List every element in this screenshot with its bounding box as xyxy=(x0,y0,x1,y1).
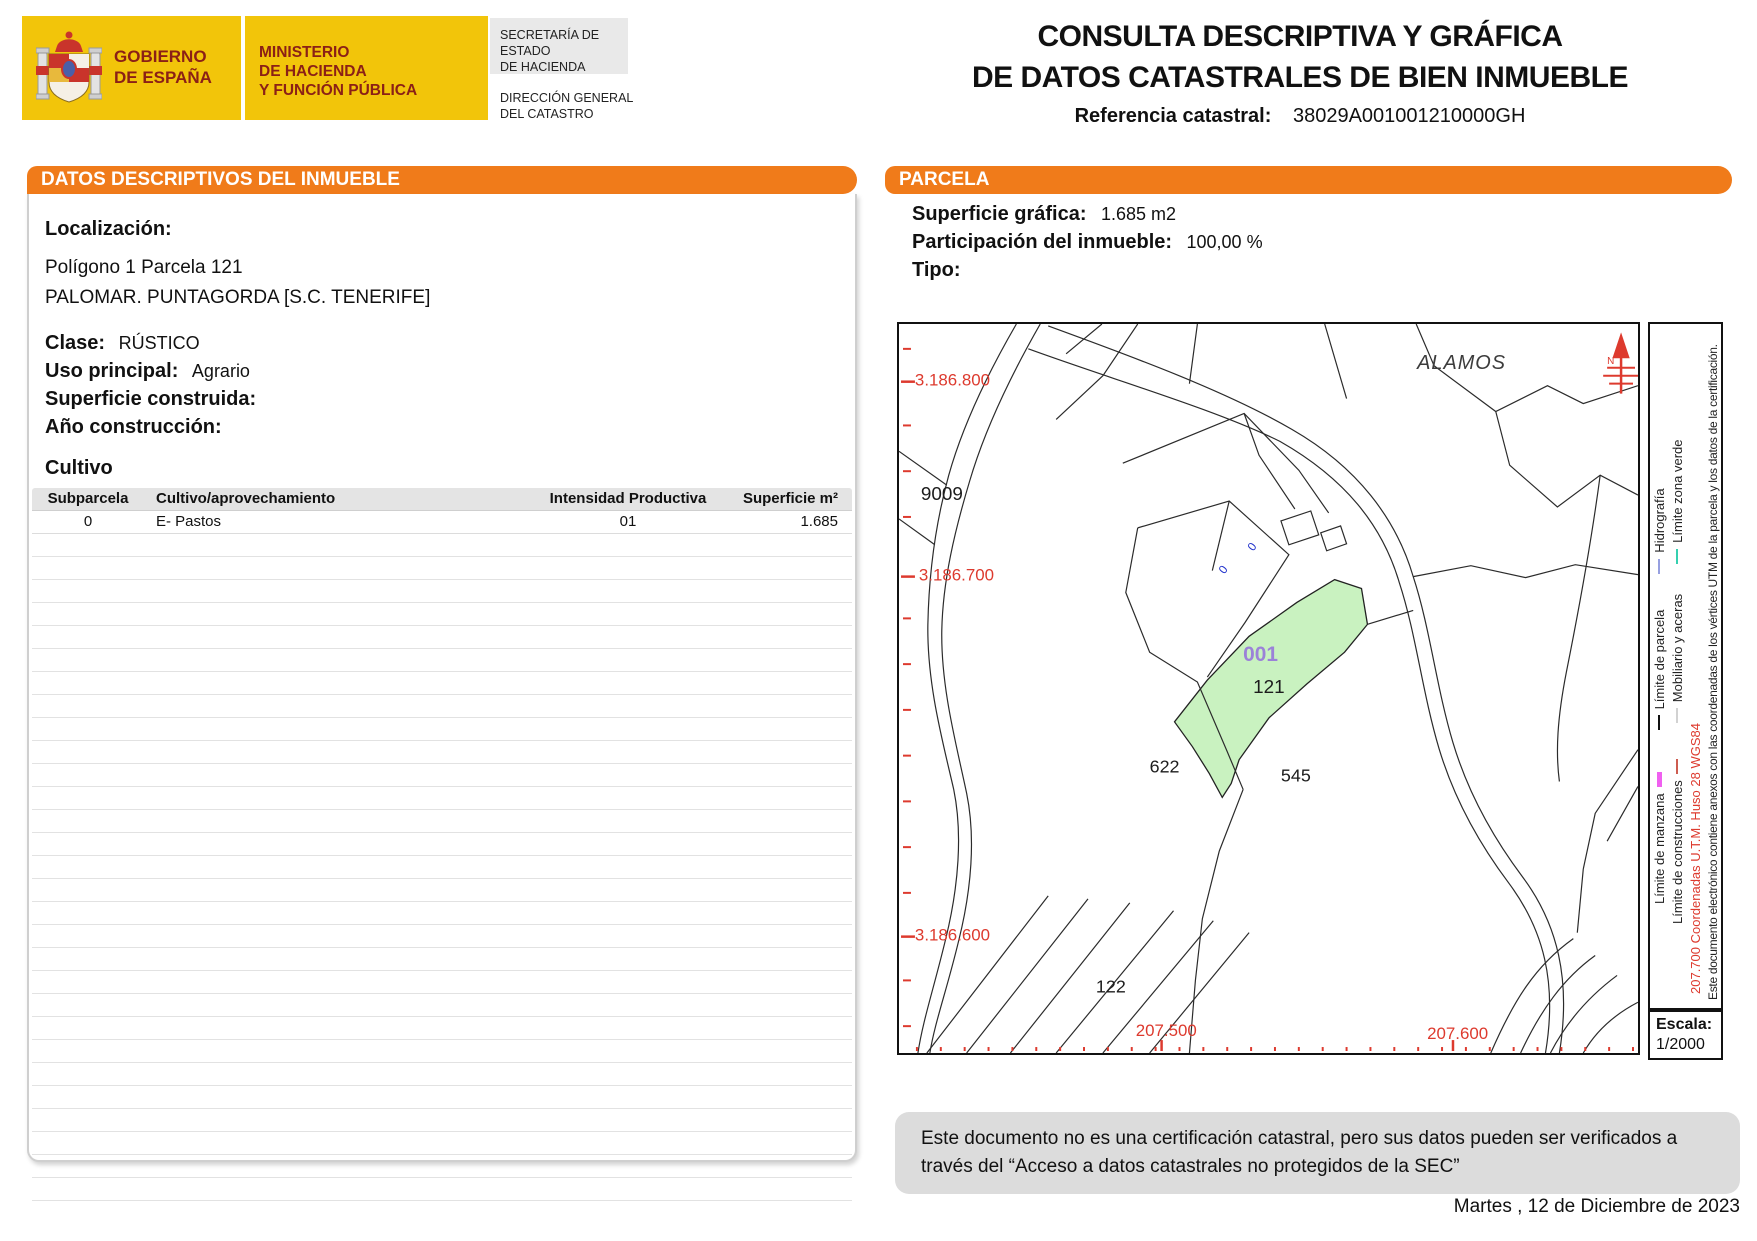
empty-table-row xyxy=(32,1063,852,1086)
gobierno-logo-text: GOBIERNO DE ESPAÑA xyxy=(114,46,212,88)
y-axis-label-3186800: 3.186.800 xyxy=(915,371,990,390)
map-label-9009: 9009 xyxy=(921,484,963,505)
ministerio-banner: MINISTERIO DE HACIENDA Y FUNCIÓN PÚBLICA xyxy=(245,16,488,120)
legend-row-2: Límite de construcciones Mobiliario y ac… xyxy=(1668,324,1686,1008)
superficie-construida-row: Superficie construida: xyxy=(45,385,855,413)
empty-table-row xyxy=(32,1132,852,1155)
tipo-label: Tipo: xyxy=(912,259,961,281)
map-legend-panel: Límite de manzana Límite de parcela Hidr… xyxy=(1648,322,1723,1010)
scale-box: Escala: 1/2000 xyxy=(1648,1010,1723,1060)
legend-limite-parcela-label: Límite de parcela xyxy=(1652,610,1667,710)
clase-value: RÚSTICO xyxy=(119,333,200,353)
map-canvas: N ALAMOS 9009 122 622 545 001 121 3.186.… xyxy=(899,324,1638,1053)
anio-construccion-row: Año construcción: xyxy=(45,413,855,441)
empty-table-row xyxy=(32,557,852,580)
tipo-row: Tipo: xyxy=(912,259,961,282)
north-letter: N xyxy=(1607,356,1614,367)
section-title-bold: INMUEBLE xyxy=(301,169,400,190)
empty-table-row xyxy=(32,718,852,741)
secretaria-estado-label: SECRETARÍA DE ESTADO DE HACIENDA xyxy=(490,18,628,74)
document-date: Martes , 12 de Diciembre de 2023 xyxy=(1454,1196,1740,1218)
localizacion-line-2: PALOMAR. PUNTAGORDA [S.C. TENERIFE] xyxy=(45,283,855,313)
clase-row: Clase: RÚSTICO xyxy=(45,329,855,357)
empty-table-row xyxy=(32,787,852,810)
empty-table-row xyxy=(32,741,852,764)
x-axis-label-207500: 207.500 xyxy=(1136,1021,1197,1040)
empty-table-row xyxy=(32,649,852,672)
empty-table-row xyxy=(32,925,852,948)
referencia-catastral-row: Referencia catastral: 38029A001001210000… xyxy=(920,105,1680,128)
col-header-superficie: Superficie m² xyxy=(734,488,852,510)
map-label-parcela-121: 121 xyxy=(1253,677,1285,698)
legend-zona-verde-label: Límite zona verde xyxy=(1670,439,1685,542)
legend-mobiliario-label: Mobiliario y aceras xyxy=(1670,594,1685,702)
empty-table-rows xyxy=(32,534,852,1201)
empty-table-row xyxy=(32,534,852,557)
empty-table-row xyxy=(32,856,852,879)
participacion-label: Participación del inmueble: xyxy=(912,231,1172,253)
document-title: CONSULTA DESCRIPTIVA Y GRÁFICA DE DATOS … xyxy=(920,16,1680,128)
cultivo-table: Subparcela Cultivo/aprovechamiento Inten… xyxy=(32,488,852,1201)
parcela-swatch-icon xyxy=(1658,715,1660,730)
cell-subparcela: 0 xyxy=(32,511,144,533)
legend-row-1: Límite de manzana Límite de parcela Hidr… xyxy=(1650,324,1668,1008)
referencia-catastral-value: 38029A001001210000GH xyxy=(1293,105,1525,127)
participacion-value: 100,00 % xyxy=(1187,232,1263,252)
localizacion-label: Localización: xyxy=(45,218,855,241)
empty-table-row xyxy=(32,1155,852,1178)
superficie-grafica-value: 1.685 m2 xyxy=(1101,204,1176,224)
cell-intensidad: 01 xyxy=(522,511,734,533)
empty-table-row xyxy=(32,810,852,833)
empty-table-row xyxy=(32,764,852,787)
title-line-1: CONSULTA DESCRIPTIVA Y GRÁFICA xyxy=(920,16,1680,57)
datos-descriptivos-panel: Localización: Polígono 1 Parcela 121 PAL… xyxy=(27,194,857,1162)
empty-table-row xyxy=(32,1086,852,1109)
cadastral-document-page: GOBIERNO DE ESPAÑA MINISTERIO DE HACIEND… xyxy=(0,0,1757,1241)
empty-table-row xyxy=(32,626,852,649)
legend-limite-manzana-label: Límite de manzana xyxy=(1652,793,1667,904)
building-label-0a: 0 xyxy=(1216,562,1231,576)
title-line-2: DE DATOS CATASTRALES DE BIEN INMUEBLE xyxy=(920,57,1680,98)
col-header-subparcela: Subparcela xyxy=(32,488,144,510)
construcciones-swatch-icon xyxy=(1676,759,1678,774)
empty-table-row xyxy=(32,672,852,695)
empty-table-row xyxy=(32,603,852,626)
empty-table-row xyxy=(32,1178,852,1201)
hidrografia-swatch-icon xyxy=(1658,559,1660,574)
empty-table-row xyxy=(32,948,852,971)
empty-table-row xyxy=(32,902,852,925)
map-label-subparcela-001: 001 xyxy=(1243,643,1278,666)
x-axis-label-207600: 207.600 xyxy=(1427,1024,1488,1043)
empty-table-row xyxy=(32,695,852,718)
map-label-alamos: ALAMOS xyxy=(1416,352,1506,374)
clase-label: Clase: xyxy=(45,332,105,354)
map-label-122: 122 xyxy=(1096,976,1126,996)
scale-value: 1/2000 xyxy=(1656,1035,1721,1055)
uso-principal-label: Uso principal: xyxy=(45,360,178,382)
cadastral-map: N ALAMOS 9009 122 622 545 001 121 3.186.… xyxy=(897,322,1640,1055)
empty-table-row xyxy=(32,833,852,856)
superficie-construida-label: Superficie construida: xyxy=(45,388,256,410)
legend-hidrografia-label: Hidrografía xyxy=(1652,488,1667,552)
localizacion-line-1: Polígono 1 Parcela 121 xyxy=(45,253,855,283)
col-header-intensidad: Intensidad Productiva xyxy=(522,488,734,510)
map-label-545: 545 xyxy=(1281,765,1311,785)
manzana-swatch-icon xyxy=(1657,772,1662,787)
map-label-622: 622 xyxy=(1150,757,1180,777)
disclaimer-box: Este documento no es una certificación c… xyxy=(895,1112,1740,1194)
scale-label: Escala: xyxy=(1656,1015,1721,1035)
empty-table-row xyxy=(32,1109,852,1132)
participacion-row: Participación del inmueble: 100,00 % xyxy=(912,231,1263,254)
north-arrow-icon: N xyxy=(1603,334,1638,394)
empty-table-row xyxy=(32,1017,852,1040)
ministerio-logo-text: MINISTERIO DE HACIENDA Y FUNCIÓN PÚBLICA xyxy=(259,43,417,100)
direccion-general-catastro-label: DIRECCIÓN GENERAL DEL CATASTRO xyxy=(500,90,633,122)
certification-note: Este documento electrónico contiene anex… xyxy=(1704,324,1722,1008)
gobierno-banner: GOBIERNO DE ESPAÑA xyxy=(22,16,241,120)
building-label-0b: 0 xyxy=(1244,539,1259,553)
section-header-datos-descriptivos: DATOS DESCRIPTIVOS DEL INMUEBLE xyxy=(27,166,857,194)
y-axis-label-3186600: 3.186.600 xyxy=(915,926,990,945)
empty-table-row xyxy=(32,580,852,603)
uso-principal-value: Agrario xyxy=(192,361,250,381)
empty-table-row xyxy=(32,879,852,902)
col-header-cultivo: Cultivo/aprovechamiento xyxy=(144,488,522,510)
referencia-catastral-label: Referencia catastral: xyxy=(1075,105,1272,127)
superficie-grafica-row: Superficie gráfica: 1.685 m2 xyxy=(912,203,1176,226)
anio-construccion-label: Año construcción: xyxy=(45,416,222,438)
uso-principal-row: Uso principal: Agrario xyxy=(45,357,855,385)
cell-cultivo: E- Pastos xyxy=(144,511,522,533)
empty-table-row xyxy=(32,994,852,1017)
zona-verde-swatch-icon xyxy=(1676,549,1678,564)
cultivo-table-row: 0 E- Pastos 01 1.685 xyxy=(32,511,852,534)
cell-superficie: 1.685 xyxy=(734,511,852,533)
mobiliario-swatch-icon xyxy=(1676,708,1678,723)
legend-limite-construcciones-label: Límite de construcciones xyxy=(1670,780,1685,924)
cultivo-table-header: Subparcela Cultivo/aprovechamiento Inten… xyxy=(32,488,852,511)
empty-table-row xyxy=(32,971,852,994)
y-axis-label-3186700: 3.186.700 xyxy=(919,566,994,585)
section-title-prefix: DATOS DESCRIPTIVOS DEL xyxy=(41,169,301,190)
superficie-grafica-label: Superficie gráfica: xyxy=(912,203,1087,225)
utm-coordinates-note: 207.700 Coordenadas U.T.M. Huso 28 WGS84 xyxy=(1686,324,1704,1008)
spain-coat-of-arms-icon xyxy=(36,28,102,108)
parcela-title: PARCELA xyxy=(899,169,989,190)
empty-table-row xyxy=(32,1040,852,1063)
cultivo-title: Cultivo xyxy=(45,457,855,480)
section-header-parcela: PARCELA xyxy=(885,166,1732,194)
